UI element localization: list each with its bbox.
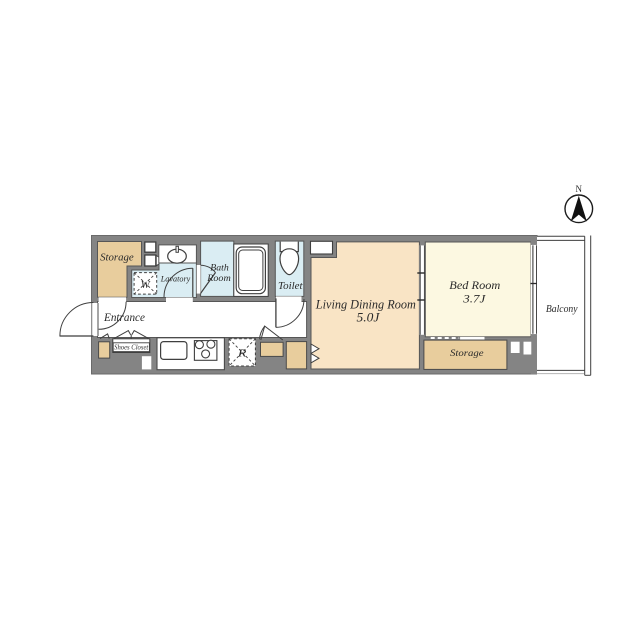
svg-text:Room: Room	[206, 274, 231, 284]
svg-text:Balcony: Balcony	[546, 304, 578, 315]
svg-text:Entrance: Entrance	[103, 310, 146, 324]
svg-text:Bed Room: Bed Room	[449, 278, 500, 292]
svg-text:Lavatory: Lavatory	[160, 274, 191, 284]
svg-text:Bath: Bath	[210, 264, 229, 274]
svg-text:Storage: Storage	[450, 348, 484, 359]
svg-text:Living Dining Room: Living Dining Room	[315, 298, 416, 312]
svg-text:Shoes Closet: Shoes Closet	[114, 342, 149, 351]
svg-text:5.0J: 5.0J	[357, 311, 381, 325]
svg-text:Toilet: Toilet	[278, 281, 304, 292]
svg-text:3.7J: 3.7J	[462, 292, 486, 306]
svg-text:R: R	[237, 349, 248, 360]
svg-text:Storage: Storage	[100, 253, 134, 264]
svg-text:N: N	[576, 184, 583, 194]
